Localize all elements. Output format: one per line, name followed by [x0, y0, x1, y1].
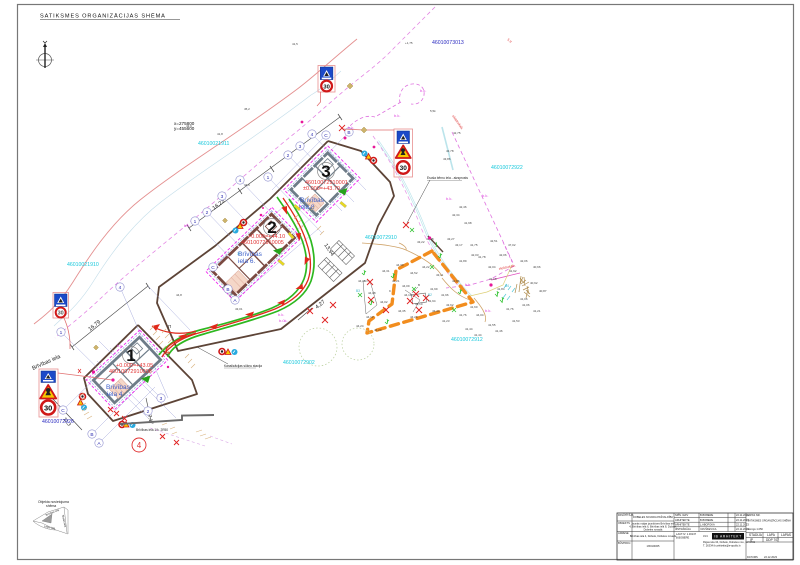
svg-text:44,02: 44,02 [380, 300, 388, 304]
svg-text:44,28: 44,28 [410, 315, 418, 319]
svg-text:C: C [61, 408, 65, 414]
svg-text:STADIJA: STADIJA [749, 533, 763, 537]
svg-text:43,78: 43,78 [446, 149, 454, 153]
svg-text:b.ūk.: b.ūk. [279, 318, 288, 323]
svg-text:IB ARHITEKT: IB ARHITEKT [714, 535, 742, 539]
svg-text:b.k.: b.k. [184, 223, 190, 228]
svg-text:b.k.: b.k. [394, 113, 400, 118]
svg-text:Kanalizācijas sūkņu stacija: Kanalizācijas sūkņu stacija [224, 364, 262, 368]
svg-text:mērogs 1:250: mērogs 1:250 [747, 527, 763, 531]
svg-text:41,55: 41,55 [488, 323, 496, 327]
svg-text:OBJEKTS: OBJEKTS [618, 521, 630, 525]
svg-text:ARHITEKTE: ARHITEKTE [675, 523, 690, 527]
svg-text:4: 4 [239, 178, 242, 184]
svg-text:44,52: 44,52 [410, 271, 418, 275]
svg-text:43,11: 43,11 [436, 273, 444, 277]
svg-text:IP: IP [750, 538, 753, 542]
svg-text:4: 4 [119, 285, 122, 291]
svg-text:43,17: 43,17 [455, 243, 463, 247]
svg-text:Esoša bērnu iela - aizsprosts: Esoša bērnu iela - aizsprosts [427, 176, 468, 180]
svg-text:44,15: 44,15 [358, 279, 366, 283]
svg-text:B.BOBERE: B.BOBERE [676, 536, 690, 540]
svg-text:shēma: shēma [46, 504, 56, 508]
svg-text:43,44: 43,44 [432, 309, 440, 313]
svg-text:40,66: 40,66 [533, 265, 541, 269]
svg-text:4: 4 [311, 132, 314, 138]
svg-text:2: 2 [287, 153, 290, 159]
svg-text:30: 30 [58, 311, 64, 317]
svg-text:42,18: 42,18 [489, 277, 497, 281]
svg-text:3: 3 [299, 144, 302, 150]
svg-text:LAPAS NR.: LAPAS NR. [747, 513, 761, 517]
svg-text:41,99: 41,99 [430, 287, 438, 291]
svg-text:SPĪN. IEFV: SPĪN. IEFV [675, 513, 689, 517]
svg-text:b.k.: b.k. [485, 308, 491, 313]
svg-text:41,06: 41,06 [522, 303, 530, 307]
svg-text:43,62: 43,62 [446, 303, 454, 307]
svg-text:44,08: 44,08 [368, 291, 376, 295]
svg-text:46010072926: 46010072926 [42, 419, 74, 425]
svg-text:44,35: 44,35 [398, 309, 406, 313]
svg-text:Brīvības: Brīvības [238, 251, 263, 258]
svg-text:41,53: 41,53 [512, 319, 520, 323]
svg-text:44,30: 44,30 [396, 263, 404, 267]
svg-text:42,46: 42,46 [459, 205, 467, 209]
svg-text:46010073013: 46010073013 [432, 40, 464, 46]
svg-text:41,76: 41,76 [459, 313, 467, 317]
svg-text:44,09: 44,09 [402, 284, 410, 288]
svg-text:b.k.: b.k. [446, 196, 452, 201]
svg-text:B: B [418, 283, 420, 287]
svg-text:b.k.: b.k. [482, 193, 488, 198]
svg-text:3: 3 [321, 162, 330, 181]
svg-text:41,60: 41,60 [470, 305, 478, 309]
svg-text:B: B [90, 432, 93, 438]
svg-text:B2: B2 [428, 293, 432, 297]
svg-text:37: 37 [237, 252, 241, 256]
svg-text:46010021910: 46010021910 [67, 262, 99, 268]
svg-text:L.ABOFOKA: L.ABOFOKA [700, 523, 715, 527]
svg-text:3: 3 [221, 194, 224, 200]
svg-text:22.11.2023: 22.11.2023 [736, 523, 749, 527]
svg-text:43,86: 43,86 [443, 157, 451, 161]
svg-text:C: C [324, 133, 328, 139]
svg-text:1: 1 [194, 219, 197, 225]
svg-text:IZSTRĀDĀJA: IZSTRĀDĀJA [675, 527, 691, 531]
svg-text:2: 2 [206, 210, 209, 216]
svg-text:b.k.: b.k. [348, 125, 354, 130]
svg-text:41,94: 41,94 [428, 299, 436, 303]
svg-text:41,75: 41,75 [470, 243, 478, 247]
svg-text:41,98: 41,98 [464, 221, 472, 225]
svg-text:iela 6.: iela 6. [238, 258, 256, 265]
svg-text:B: B [226, 287, 229, 293]
svg-text:C: C [211, 265, 215, 271]
svg-text:45,2: 45,2 [244, 107, 250, 111]
svg-text:44,21: 44,21 [392, 279, 400, 283]
svg-text:41,78: 41,78 [478, 255, 486, 259]
svg-text:46010072902: 46010072902 [283, 360, 315, 366]
svg-text:4: 4 [137, 441, 142, 450]
svg-text:42,04: 42,04 [488, 265, 496, 269]
svg-text:30: 30 [44, 403, 52, 412]
svg-text:1/50100/05: 1/50100/05 [647, 544, 661, 548]
svg-text:±0.000=+43.70: ±0.000=+43.70 [303, 186, 340, 192]
svg-text:42,75: 42,75 [453, 131, 461, 135]
svg-text:42,06: 42,06 [499, 253, 507, 257]
svg-text:b.k.: b.k. [465, 282, 471, 287]
svg-text:y=455600: y=455600 [174, 126, 195, 131]
svg-text:43,27: 43,27 [447, 237, 455, 241]
svg-text:Rīgas iela 34, Dobele, Dobeles: Rīgas iela 34, Dobele, Dobeles nov., LV-… [703, 540, 756, 544]
svg-text:ADRESE: ADRESE [618, 531, 629, 535]
svg-text:41,76: 41,76 [506, 307, 514, 311]
svg-text:41,5: 41,5 [292, 42, 298, 46]
svg-text:43,22: 43,22 [417, 240, 425, 244]
svg-text:41,92: 41,92 [509, 269, 517, 273]
svg-text:B.BOBERE: B.BOBERE [700, 518, 714, 522]
svg-text:42,06: 42,06 [520, 259, 528, 263]
svg-text:22.12.2023: 22.12.2023 [764, 555, 778, 559]
svg-text:SATIKSMES ORGANIZĀCIJAS SHĒMA: SATIKSMES ORGANIZĀCIJAS SHĒMA [748, 520, 792, 523]
svg-text:46010072910005: 46010072910005 [241, 240, 284, 246]
svg-text:42,34: 42,34 [452, 213, 460, 217]
svg-text:46010072922: 46010072922 [491, 165, 523, 171]
svg-text:41,44: 41,44 [465, 327, 473, 331]
svg-text:DATUMS: DATUMS [747, 555, 758, 559]
svg-text:B3: B3 [356, 289, 360, 293]
svg-text:LAPA: LAPA [767, 533, 776, 537]
svg-text:Brīvības: Brīvības [300, 197, 325, 204]
svg-text:ARHITEKTE: ARHITEKTE [675, 518, 690, 522]
svg-text:41,84: 41,84 [497, 287, 505, 291]
svg-text:40,87: 40,87 [539, 289, 547, 293]
svg-text:41,23: 41,23 [442, 319, 450, 323]
svg-text:B.BOBERE: B.BOBERE [700, 513, 714, 517]
svg-text:1: 1 [60, 330, 63, 336]
svg-text:SATIKSMES ORGANIZĀCIJAS SHĒMA: SATIKSMES ORGANIZĀCIJAS SHĒMA [40, 13, 166, 20]
svg-text:iela 4: iela 4 [107, 391, 123, 398]
svg-text:Dobeles novadā: Dobeles novadā [644, 528, 663, 532]
svg-text:PASŪTĪTĀJS: PASŪTĪTĀJS [618, 513, 634, 517]
svg-text:30: 30 [323, 84, 329, 90]
svg-text:42,51: 42,51 [490, 239, 498, 243]
svg-text:44,24: 44,24 [356, 324, 364, 328]
svg-text:40,92: 40,92 [530, 281, 538, 285]
svg-text:3: 3 [160, 396, 163, 402]
svg-text:41,96: 41,96 [441, 293, 449, 297]
svg-text:44,22: 44,22 [422, 265, 430, 269]
svg-text:41,21: 41,21 [533, 309, 541, 313]
svg-text:46010072912: 46010072912 [451, 337, 483, 343]
svg-text:44,31: 44,31 [382, 269, 390, 273]
svg-text:Brīvības: Brīvības [106, 384, 131, 391]
svg-text:B4: B4 [505, 284, 509, 288]
svg-text:46010072910008: 46010072910008 [109, 369, 152, 375]
svg-text:41,89: 41,89 [459, 259, 467, 263]
svg-text:44,6: 44,6 [244, 183, 250, 187]
svg-text:b.k.: b.k. [420, 88, 426, 93]
svg-text:44,20: 44,20 [374, 328, 382, 332]
svg-text:Brīvības iela 4, Dobele, Dobel: Brīvības iela 4, Dobele, Dobeles novads [630, 534, 677, 538]
svg-text:43,01: 43,01 [235, 307, 243, 311]
svg-text:41,46: 41,46 [495, 329, 503, 333]
svg-text:5,5k: 5,5k [430, 109, 436, 113]
svg-text:41,8: 41,8 [217, 132, 223, 136]
svg-text:47,02: 47,02 [508, 243, 516, 247]
svg-text:B: B [347, 130, 350, 136]
svg-text:b.k.: b.k. [278, 312, 284, 317]
svg-text:iela 8: iela 8 [299, 204, 315, 211]
svg-text:2: 2 [147, 409, 150, 415]
svg-text:44,12: 44,12 [366, 315, 374, 319]
svg-text:T. 26334 ib.arhitekts@e-apoll: T. 26334 ib.arhitekts@e-apollo.lv [703, 544, 741, 548]
svg-text:46010072910: 46010072910 [365, 235, 397, 241]
svg-text:31 b: 31 b [703, 534, 709, 538]
svg-text:+1,75: +1,75 [405, 41, 413, 45]
svg-text:LAUT.IV. 1.30137: LAUT.IV. 1.30137 [676, 532, 697, 536]
svg-text:1: 1 [267, 175, 270, 181]
svg-text:44,04: 44,04 [476, 313, 484, 317]
svg-text:b.k.: b.k. [117, 343, 123, 348]
svg-text:46010021911: 46010021911 [198, 141, 229, 147]
svg-text:BŪVPROJ.: BŪVPROJ. [618, 541, 631, 545]
svg-text:LAPAS: LAPAS [781, 533, 791, 537]
svg-text:42,86: 42,86 [452, 279, 460, 283]
svg-text:Π: Π [168, 324, 171, 329]
svg-text:DDP 707: DDP 707 [766, 538, 779, 542]
svg-text:42,03: 42,03 [471, 253, 479, 257]
svg-text:41,06: 41,06 [520, 297, 528, 301]
svg-text:44,10: 44,10 [415, 302, 423, 306]
svg-text:44,18: 44,18 [404, 293, 412, 297]
svg-text:30: 30 [400, 165, 408, 172]
svg-text:44,8: 44,8 [176, 293, 182, 297]
